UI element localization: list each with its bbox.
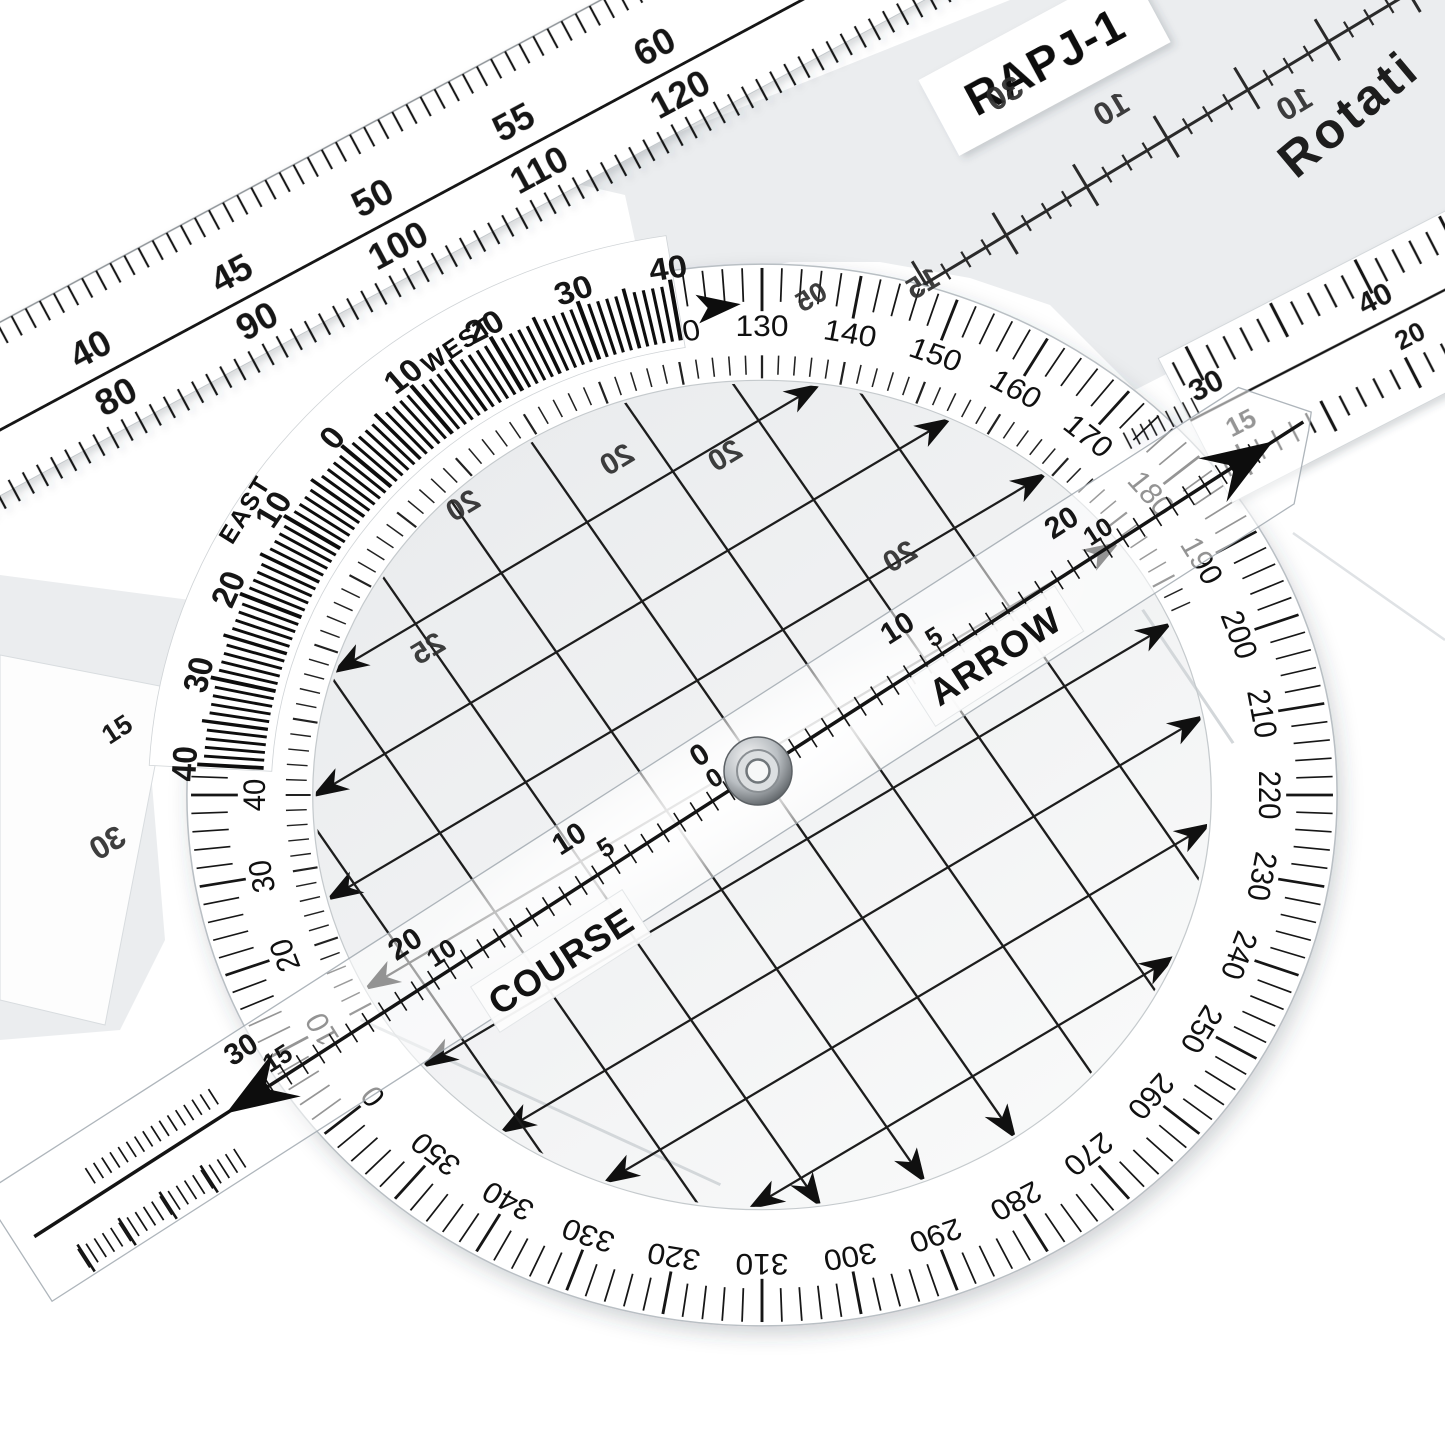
vernier-east-number: 40 bbox=[164, 745, 205, 782]
rose-degree-label: 130 bbox=[736, 310, 789, 343]
tick-mark bbox=[286, 780, 307, 781]
rivet-hole bbox=[747, 760, 770, 783]
vernier-west-number: 40 bbox=[646, 248, 690, 289]
tick-mark bbox=[286, 810, 307, 811]
rose-degree-label: 310 bbox=[736, 1247, 789, 1280]
tick-mark bbox=[778, 356, 779, 375]
tick-mark bbox=[925, 0, 936, 10]
plotter-scene: 354045505560708090100110120 010203040506… bbox=[0, 0, 1445, 1445]
tick-mark bbox=[1174, 407, 1182, 423]
tick-mark bbox=[939, 0, 950, 2]
rose-degree-label: 220 bbox=[1252, 771, 1287, 820]
product-photo: 354045505560708090100110120 010203040506… bbox=[0, 0, 1445, 1445]
tick-mark bbox=[745, 356, 746, 375]
rose-degree-label: 30 bbox=[242, 857, 283, 895]
center-rivet bbox=[724, 737, 792, 805]
rose-degree-label: 40 bbox=[237, 779, 272, 812]
plate-edge-line bbox=[1293, 533, 1445, 640]
